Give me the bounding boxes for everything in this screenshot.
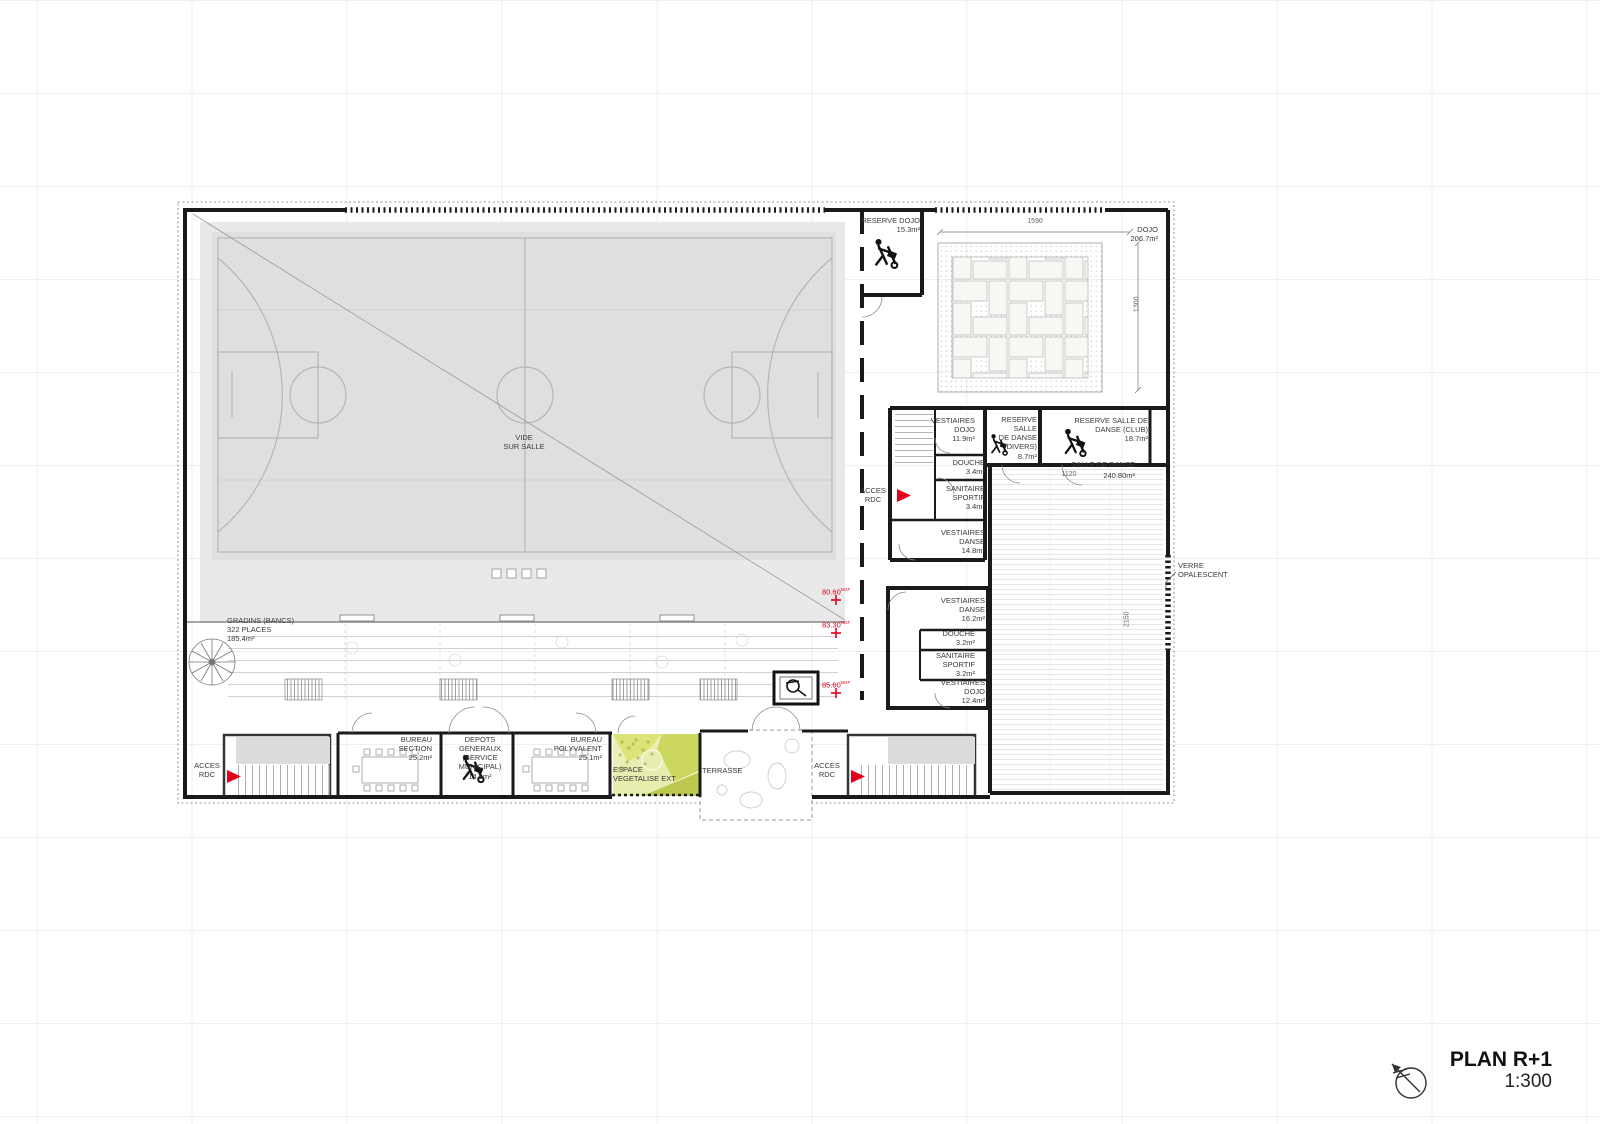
mid-staircase (895, 412, 933, 468)
spiral-staircase (189, 639, 235, 685)
gradins-bleachers (185, 615, 845, 700)
plan-title: PLAN R+1 (1450, 1048, 1552, 1071)
right-staircase (848, 735, 975, 797)
terrasse-deck (700, 730, 812, 820)
espace-vegetalise-zone (613, 734, 700, 796)
sports-hall-void (193, 214, 845, 622)
salle-de-danse-floor (992, 467, 1163, 791)
left-staircase (224, 735, 330, 797)
floor-plan-drawing (0, 0, 1600, 1124)
title-block: PLAN R+1 1:300 (1372, 1048, 1552, 1093)
floor-plan-sheet: RESERVE DOJO15.3m²DOJO206.7m²15901300VES… (0, 0, 1600, 1124)
equipment-symbol-box (774, 672, 818, 704)
plan-scale: 1:300 (1450, 1071, 1552, 1093)
